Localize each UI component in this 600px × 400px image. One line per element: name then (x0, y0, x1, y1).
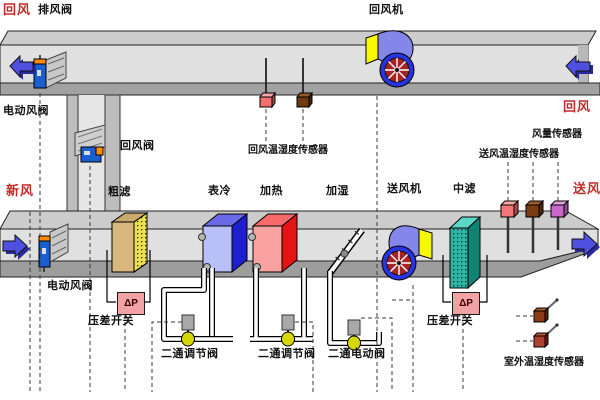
cooling-coil-piping (164, 268, 233, 346)
label-valve-regulating-1: 二通调节阀 (161, 349, 219, 360)
diagram-canvas (0, 0, 600, 400)
coarse-filter-device (112, 213, 147, 272)
label-fresh-air: 新风 (6, 184, 34, 197)
label-dp-switch-left: 压差开关 (88, 316, 134, 327)
dp-switch-box-left: ΔP (117, 292, 145, 315)
label-airflow-sensor: 风量传感器 (532, 130, 582, 140)
mid-filter-device (450, 217, 480, 288)
humidifier-piping (330, 271, 379, 350)
label-motor-damper-bottom: 电动风阀 (47, 281, 93, 292)
outdoor-th-sensors (534, 298, 559, 347)
label-outdoor-th-sensor: 室外温湿度传感器 (504, 358, 584, 368)
dp-symbol-left: ΔP (124, 298, 138, 309)
label-return-air-top-left: 回风 (3, 3, 31, 16)
label-mid-filter: 中滤 (453, 184, 476, 195)
label-supply-air-th-sensor: 送风温湿度传感器 (479, 150, 559, 160)
label-motor-damper-top: 电动风阀 (3, 106, 49, 117)
label-dp-switch-right: 压差开关 (427, 316, 473, 327)
label-return-damper: 回风阀 (120, 141, 155, 152)
label-cooling-coil: 表冷 (208, 186, 231, 197)
label-valve-motorized: 二通电动阀 (328, 349, 386, 360)
dp-switch-box-right: ΔP (452, 292, 480, 315)
label-humidifier: 加湿 (326, 186, 349, 197)
label-valve-regulating-2: 二通调节阀 (258, 349, 316, 360)
return-air-duct (0, 31, 600, 95)
label-supply-fan: 送风机 (387, 184, 422, 195)
label-coarse-filter: 粗滤 (108, 187, 131, 198)
hvac-ahu-diagram: 回风 排风阀 回风机 回风 电动风阀 回风阀 新风 粗滤 表冷 加热 加湿 送风… (0, 0, 600, 400)
label-supply-air: 送风 (573, 182, 600, 195)
heating-coil-piping (250, 268, 313, 346)
label-return-air-th-sensor: 回风温湿度传感器 (248, 146, 328, 156)
label-return-air-right: 回风 (563, 100, 591, 113)
dp-symbol-right: ΔP (459, 298, 473, 309)
label-heating-coil: 加热 (260, 186, 283, 197)
label-exhaust-damper: 排风阀 (38, 5, 73, 16)
label-return-fan: 回风机 (369, 5, 404, 16)
